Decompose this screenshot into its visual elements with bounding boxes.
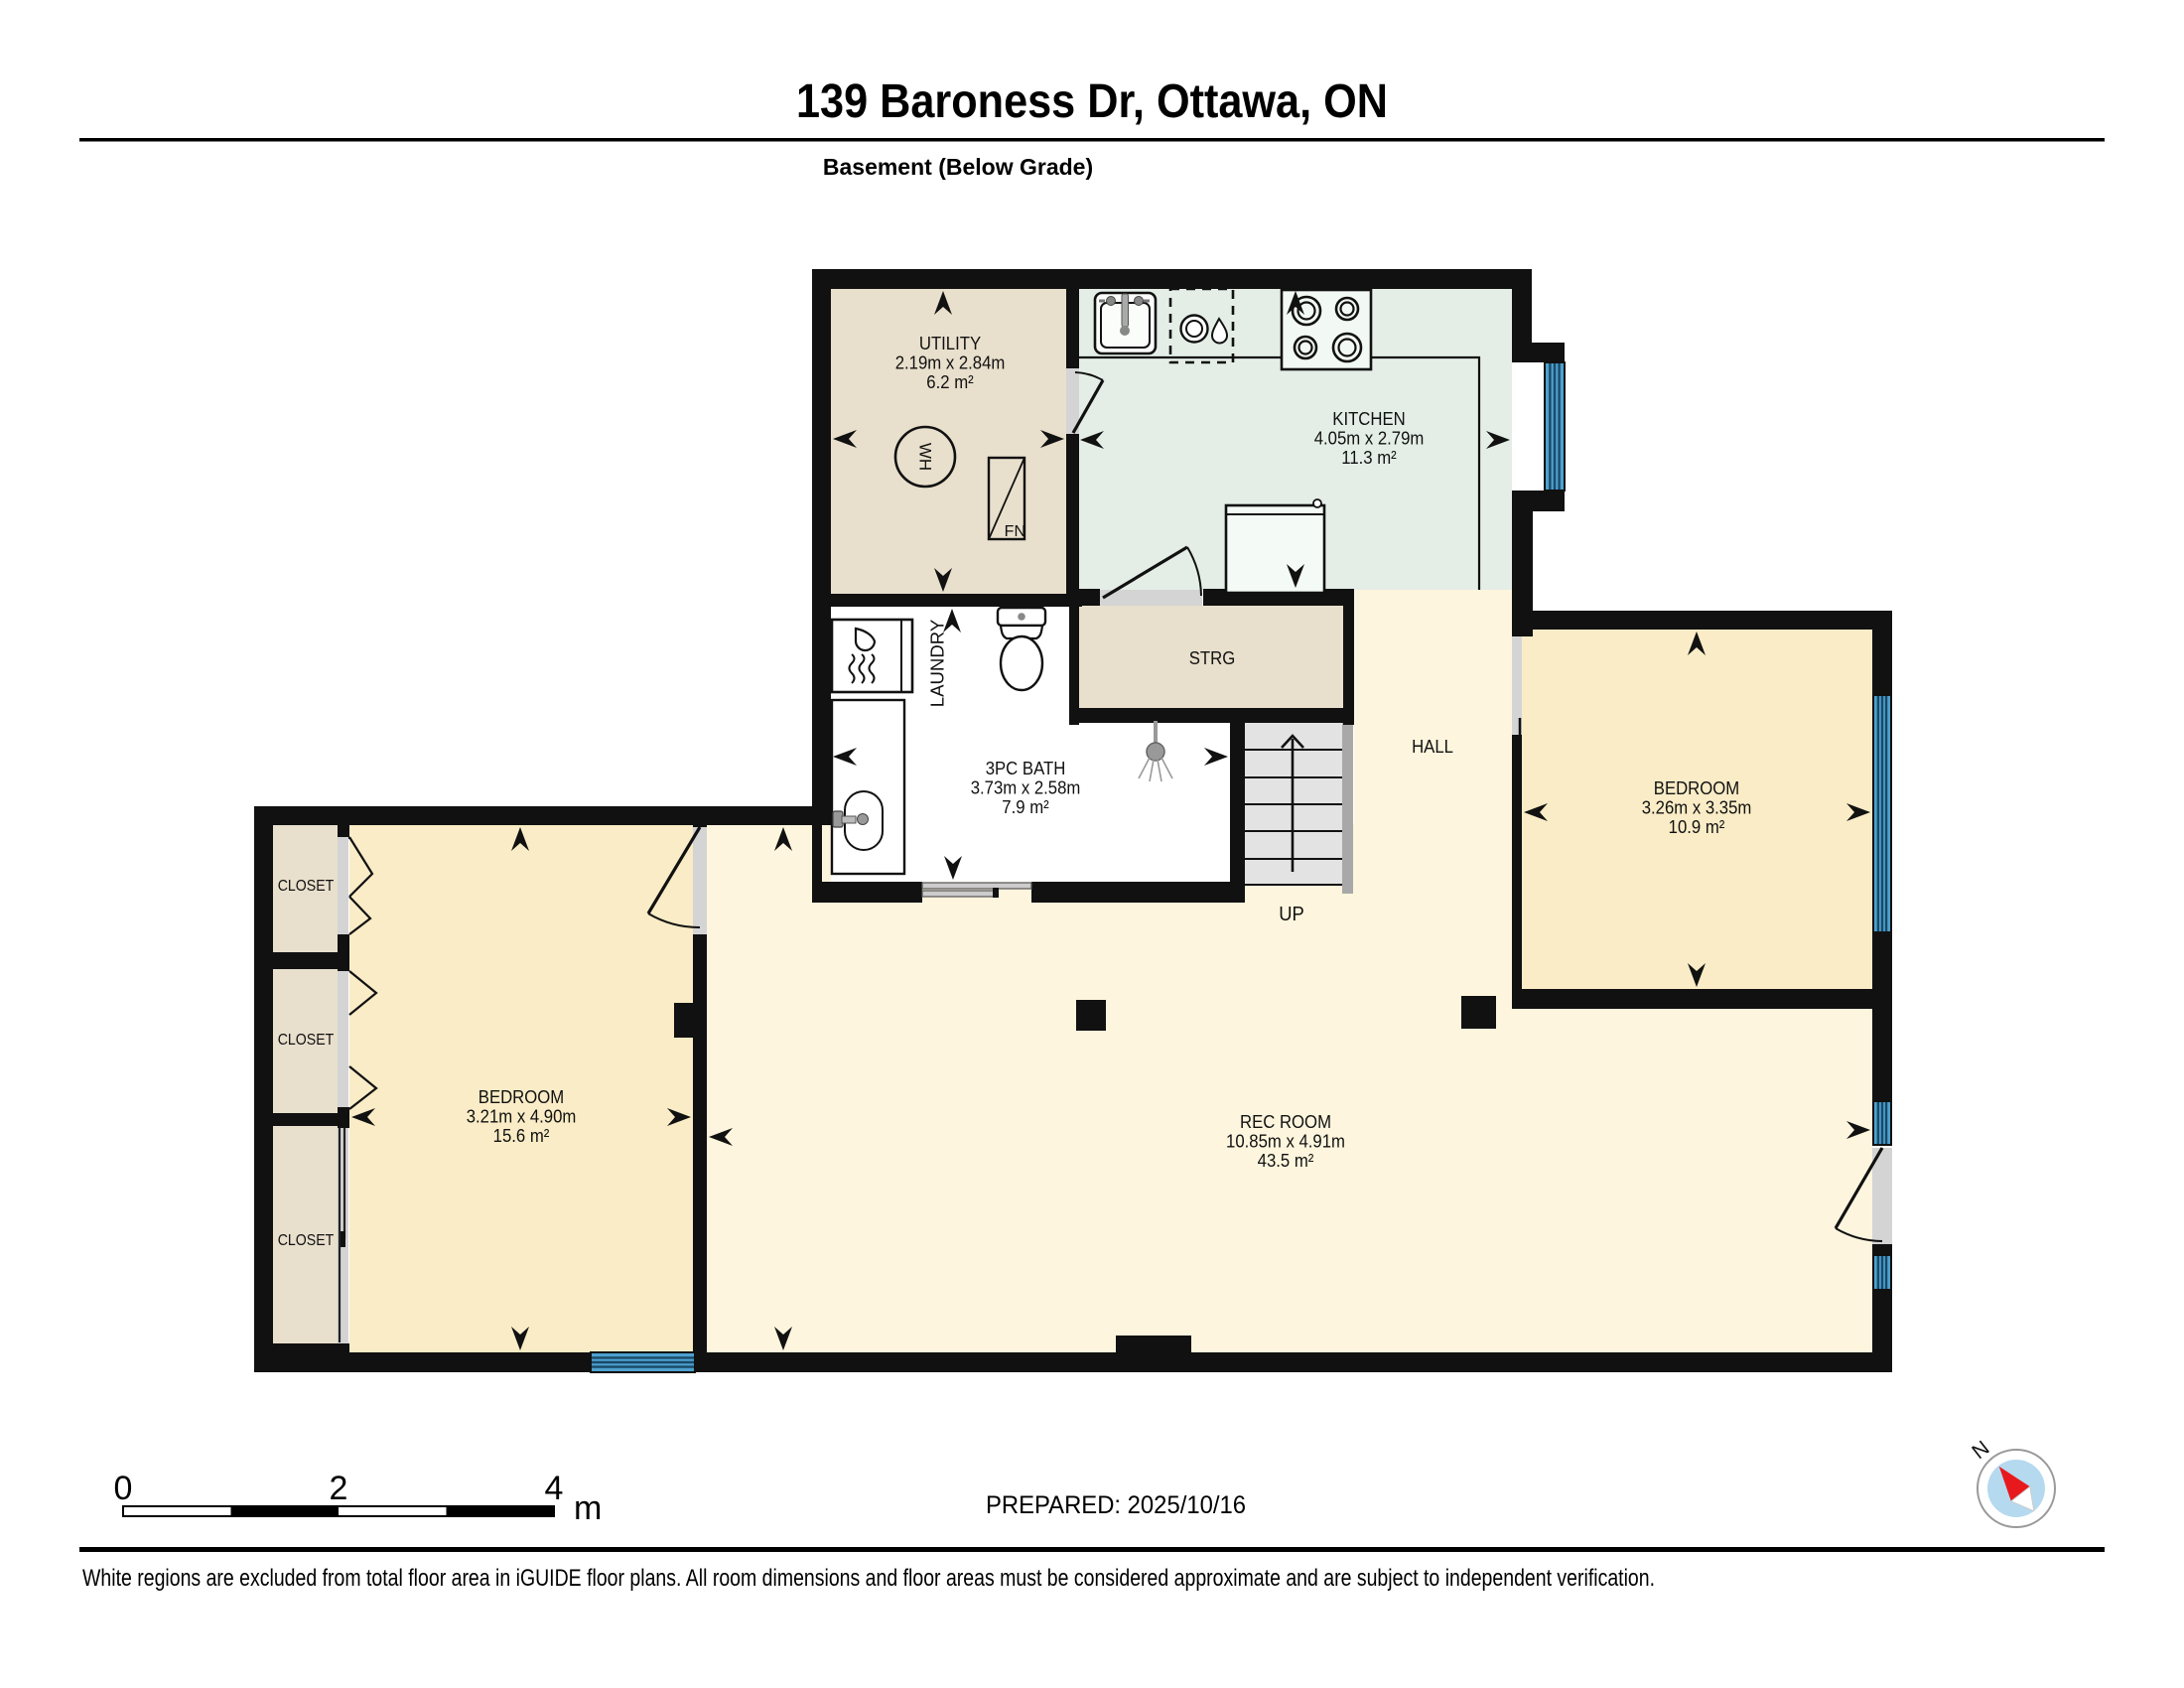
svg-text:White regions are excluded fro: White regions are excluded from total fl… [82, 1565, 1655, 1592]
svg-text:CLOSET: CLOSET [278, 1033, 335, 1050]
svg-text:REC ROOM: REC ROOM [1240, 1111, 1331, 1132]
svg-text:LAUNDRY: LAUNDRY [927, 620, 948, 708]
svg-text:PREPARED: 2025/10/16: PREPARED: 2025/10/16 [986, 1491, 1246, 1519]
svg-text:Basement (Below Grade): Basement (Below Grade) [823, 154, 1093, 180]
svg-text:WH: WH [916, 443, 935, 471]
svg-text:4.05m x 2.79m: 4.05m x 2.79m [1314, 428, 1425, 449]
svg-text:7.9 m²: 7.9 m² [1002, 796, 1049, 817]
svg-text:BEDROOM: BEDROOM [478, 1086, 564, 1107]
svg-text:2: 2 [330, 1470, 348, 1507]
svg-text:10.9 m²: 10.9 m² [1669, 816, 1725, 837]
svg-text:4: 4 [545, 1470, 564, 1507]
svg-text:43.5 m²: 43.5 m² [1258, 1150, 1314, 1171]
svg-text:3.73m x 2.58m: 3.73m x 2.58m [971, 777, 1081, 798]
svg-text:BEDROOM: BEDROOM [1654, 777, 1739, 798]
svg-text:UP: UP [1279, 904, 1304, 925]
svg-text:m: m [574, 1489, 602, 1527]
svg-text:3.26m x 3.35m: 3.26m x 3.35m [1642, 797, 1752, 818]
svg-text:CLOSET: CLOSET [278, 1233, 335, 1250]
svg-text:UTILITY: UTILITY [919, 333, 982, 353]
svg-text:2.19m x 2.84m: 2.19m x 2.84m [895, 352, 1006, 373]
svg-text:3.21m x 4.90m: 3.21m x 4.90m [467, 1106, 577, 1127]
svg-text:KITCHEN: KITCHEN [1332, 408, 1405, 429]
svg-text:11.3 m²: 11.3 m² [1341, 447, 1397, 468]
svg-text:10.85m x 4.91m: 10.85m x 4.91m [1226, 1131, 1345, 1152]
svg-text:HALL: HALL [1412, 736, 1453, 757]
svg-text:15.6 m²: 15.6 m² [493, 1125, 550, 1146]
svg-text:3PC BATH: 3PC BATH [986, 758, 1066, 778]
svg-text:FN: FN [1005, 523, 1025, 540]
svg-text:6.2 m²: 6.2 m² [926, 371, 974, 392]
svg-text:0: 0 [114, 1470, 133, 1507]
svg-text:STRG: STRG [1189, 647, 1235, 668]
svg-text:139 Baroness Dr, Ottawa, ON: 139 Baroness Dr, Ottawa, ON [796, 75, 1388, 128]
svg-text:CLOSET: CLOSET [278, 879, 335, 896]
